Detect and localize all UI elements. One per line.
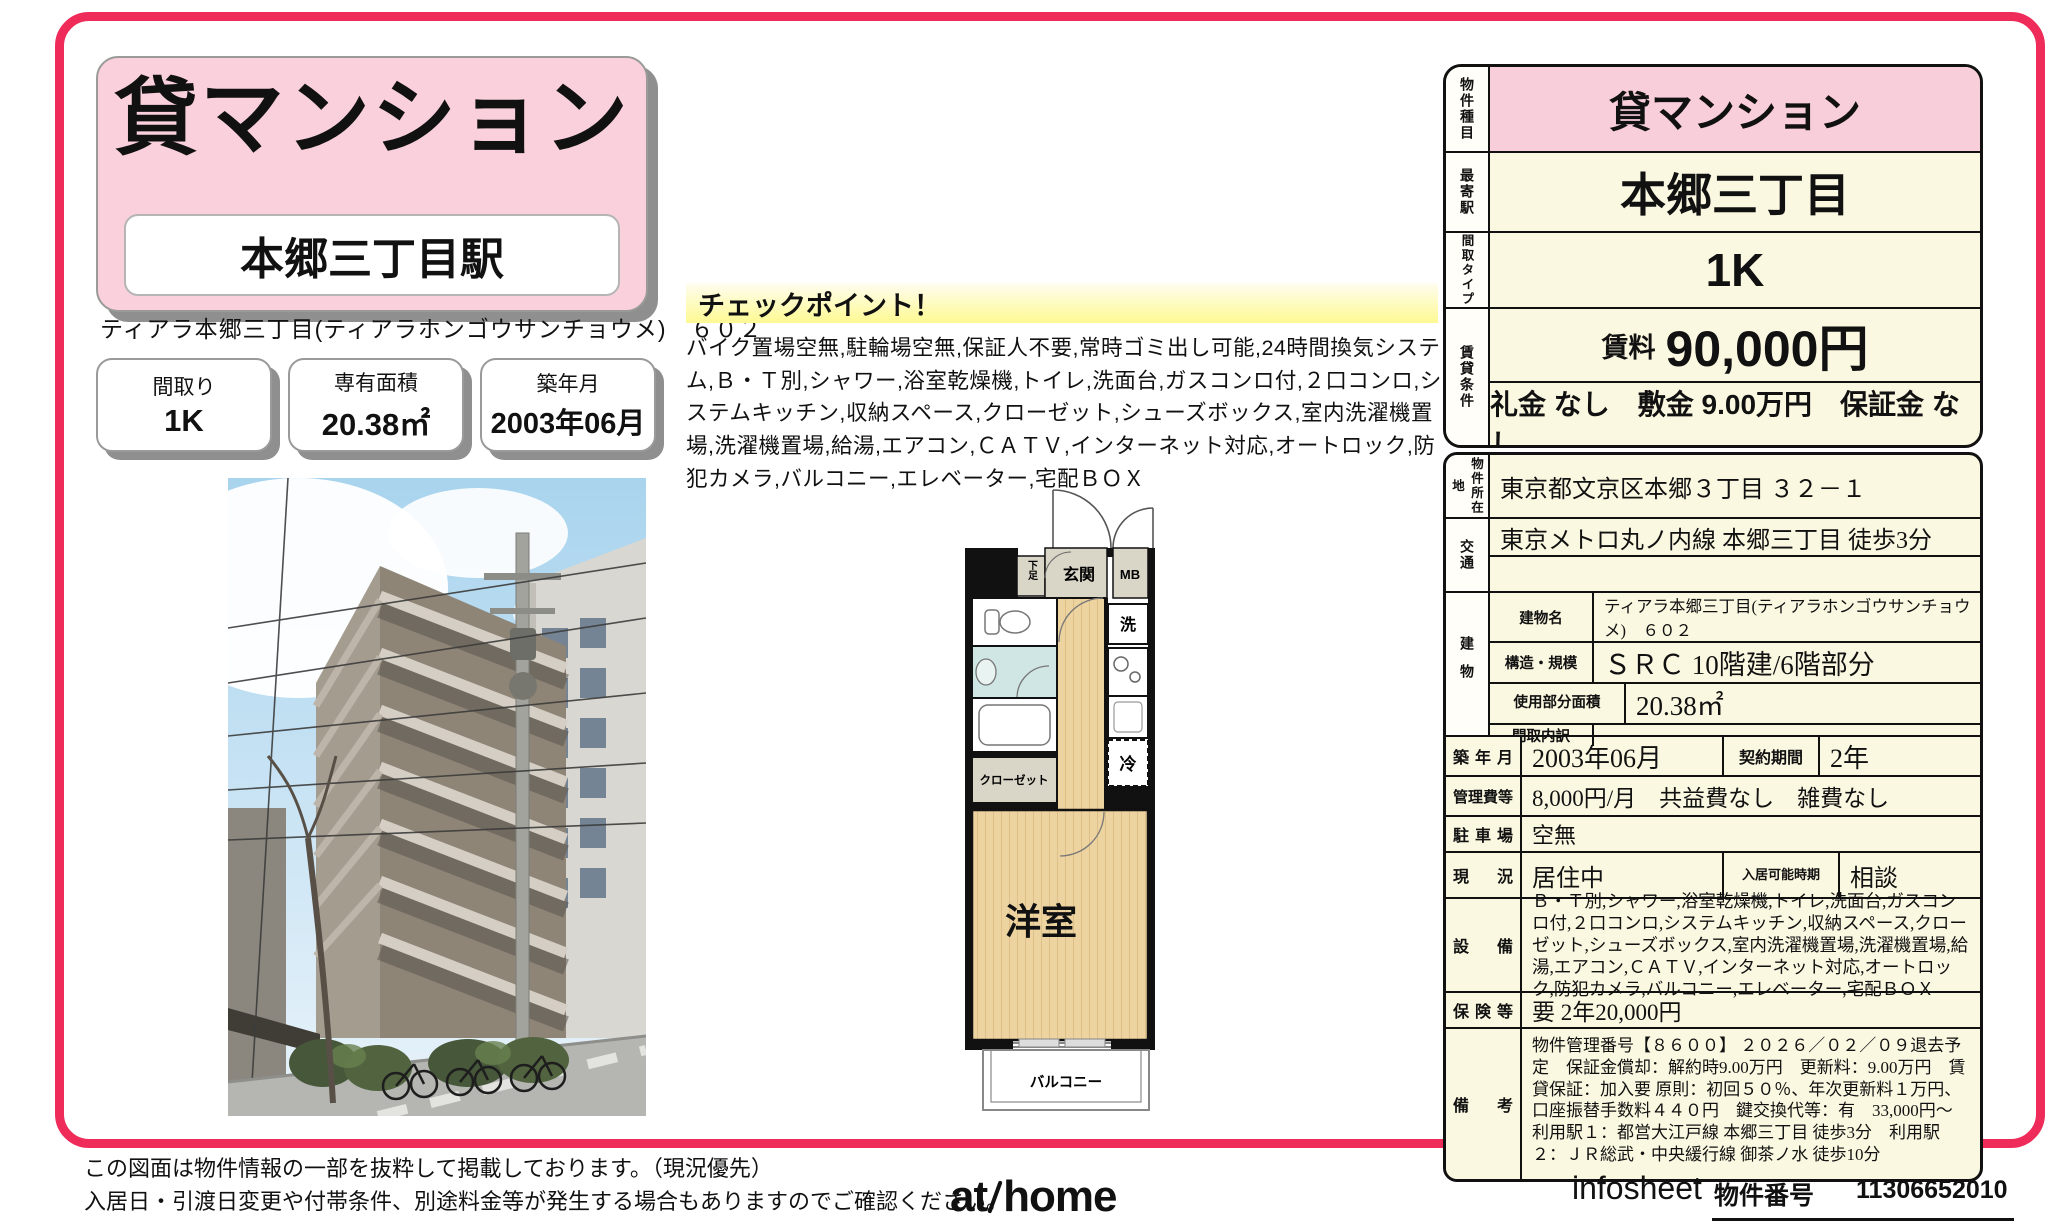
sub-value: ティアラ本郷三丁目(ティアラホンゴウサンチョウメ) ６０２ <box>1594 593 1980 641</box>
badge-area: 専有面積 20.38㎡ <box>288 358 464 452</box>
access-value: 東京メトロ丸ノ内線 本郷三丁目 徒歩3分 <box>1490 519 1980 557</box>
sub-value: 20.38㎡ <box>1626 684 1980 723</box>
row-label2: 契約期間 <box>1722 737 1820 775</box>
badge-label: 間取り <box>153 371 216 401</box>
row-value: 8,000円/月 共益費なし 雑費なし <box>1522 777 1980 815</box>
summary-row-station: 最寄駅 本郷三丁目 <box>1446 151 1980 231</box>
checkpoint-body: バイク置場空無,駐輪場空無,保証人不要,常時ゴミ出し可能,24時間換気システム,… <box>686 332 1448 495</box>
row-label: 駐車場 <box>1446 822 1520 846</box>
detail-row-notes: 備考 物件管理番号【８６００】 ２０２６／０２／０９退去予定 保証金償却：解約時… <box>1446 1027 1980 1179</box>
summary-row-type: 物件種目 貸マンション <box>1446 67 1980 151</box>
property-number: 物件番号 11306652010 <box>1712 1176 2014 1221</box>
disclaimer-line1: この図面は物件情報の一部を抜粋して掲載しております。（現況優先） <box>84 1152 1008 1185</box>
row-label: 保険等 <box>1446 998 1520 1022</box>
row-label: 賃貸条件 <box>1446 309 1490 445</box>
sub-value: ＳＲＣ 10階建/6階部分 <box>1594 643 1980 682</box>
floorplan-entrance-label: 玄関 <box>1063 565 1095 584</box>
row-label: 間取タイプ <box>1446 233 1490 307</box>
floorplan-meterbox-label: MB <box>1120 567 1140 582</box>
logo-slash-icon <box>987 1180 1002 1213</box>
disclaimer-line2: 入居日・引渡日変更や付帯条件、別途料金等が発生する場合もありますのでご確認くださ… <box>84 1185 1008 1218</box>
row-label: 設備 <box>1446 933 1520 957</box>
sub-label: 建物名 <box>1490 593 1594 641</box>
sub-label: 使用部分面積 <box>1490 684 1626 723</box>
row-value: 本郷三丁目 <box>1490 153 1980 231</box>
detail-row-equipment: 設備 Ｂ・Ｔ別,シャワー,浴室乾燥機,トイレ,洗面台,ガスコンロ付,２口コンロ,… <box>1446 897 1980 991</box>
detail-row-location: 物件所在地 東京都文京区本郷３丁目 ３２－１ <box>1446 455 1980 517</box>
row-value: 物件管理番号【８６００】 ２０２６／０２／０９退去予定 保証金償却：解約時9.0… <box>1522 1029 1980 1179</box>
detail-row-insurance: 保険等 要 2年20,000円 <box>1446 991 1980 1027</box>
summary-row-rent: 賃貸条件 賃料 90,000円 礼金 なし 敷金 9.00万円 保証金 なし <box>1446 307 1980 445</box>
property-name: ティアラ本郷三丁目(ティアラホンゴウサンチョウメ) ６０２ <box>100 310 763 344</box>
row-label: 管理費等 <box>1446 786 1520 807</box>
detail-row-built: 築年月 2003年06月 契約期間 2年 <box>1446 735 1980 775</box>
badge-built: 築年月 2003年06月 <box>480 358 656 452</box>
athome-logo: at home <box>950 1172 1116 1222</box>
building-photo <box>228 478 646 1116</box>
detail-row-parking: 駐車場 空無 <box>1446 815 1980 851</box>
station-box: 本郷三丁目駅 <box>124 214 620 296</box>
footer-disclaimer: この図面は物件情報の一部を抜粋して掲載しております。（現況優先） 入居日・引渡日… <box>84 1152 1008 1218</box>
detail-table: 物件所在地 東京都文京区本郷３丁目 ３２－１ 交通 東京メトロ丸ノ内線 本郷三丁… <box>1443 452 1983 1182</box>
rent-value: 90,000円 <box>1666 309 1869 381</box>
badge-value: 2003年06月 <box>491 400 646 442</box>
row-value: 1K <box>1490 233 1980 307</box>
badge-label: 専有面積 <box>334 367 418 397</box>
badge-label: 築年月 <box>537 368 600 398</box>
row-label: 築年月 <box>1446 744 1520 768</box>
row-value: 空無 <box>1522 817 1980 851</box>
row-label: 建物 <box>1446 593 1490 735</box>
row-value: 2003年06月 <box>1522 737 1722 775</box>
row-label: 物件所在地 <box>1446 455 1490 517</box>
badge-value: 20.38㎡ <box>322 399 431 444</box>
floorplan-fridge-label: 冷 <box>1120 754 1137 774</box>
detail-row-access: 交通 東京メトロ丸ノ内線 本郷三丁目 徒歩3分 <box>1446 517 1980 591</box>
row-label: 最寄駅 <box>1446 153 1490 231</box>
row-label: 備考 <box>1446 1092 1520 1116</box>
property-type-title: 貸マンション <box>98 72 646 164</box>
floorplan: 下足 玄関 MB 洗 クローゼット 冷 洋室 バルコニー <box>953 478 1201 1170</box>
sub-label: 構造・規模 <box>1490 643 1594 682</box>
rent-terms: 礼金 なし 敷金 9.00万円 保証金 なし <box>1490 383 1980 448</box>
floorplan-washer-label: 洗 <box>1120 615 1136 634</box>
floorplan-balcony-label: バルコニー <box>1030 1074 1102 1091</box>
logo-at: at <box>950 1172 987 1222</box>
row-label: 物件種目 <box>1446 67 1490 151</box>
detail-row-fees: 管理費等 8,000円/月 共益費なし 雑費なし <box>1446 775 1980 815</box>
summary-table: 物件種目 貸マンション 最寄駅 本郷三丁目 間取タイプ 1K 賃貸条件 賃料 9… <box>1443 64 1983 448</box>
checkpoint-title: チェックポイント！ <box>686 283 1438 323</box>
row-value: 要 2年20,000円 <box>1522 993 1980 1027</box>
badge-value: 1K <box>164 403 204 439</box>
row-label: 現況 <box>1446 863 1520 887</box>
floorplan-room-label: 洋室 <box>1005 901 1077 942</box>
access-empty <box>1490 557 1980 591</box>
detail-row-building: 建物 建物名 ティアラ本郷三丁目(ティアラホンゴウサンチョウメ) ６０２ 構造・… <box>1446 591 1980 735</box>
badge-layout: 間取り 1K <box>96 358 272 452</box>
row-value2: 2年 <box>1820 737 1980 775</box>
row-value: Ｂ・Ｔ別,シャワー,浴室乾燥機,トイレ,洗面台,ガスコンロ付,２口コンロ,システ… <box>1522 899 1980 991</box>
rent-label: 賃料 <box>1602 326 1656 365</box>
property-number-value: 11306652010 <box>1856 1176 2008 1212</box>
row-value: 東京都文京区本郷３丁目 ３２－１ <box>1490 455 1980 517</box>
property-number-label: 物件番号 <box>1714 1176 1814 1212</box>
badge-row: 間取り 1K 専有面積 20.38㎡ 築年月 2003年06月 <box>96 358 656 452</box>
floorplan-shoebox-label: 下足 <box>1026 560 1038 581</box>
infosheet-label: infosheet <box>1572 1170 1702 1207</box>
summary-row-layout: 間取タイプ 1K <box>1446 231 1980 307</box>
row-value: 貸マンション <box>1490 67 1980 151</box>
floorplan-closet-label: クローゼット <box>980 773 1049 787</box>
logo-home: home <box>1003 1172 1116 1222</box>
row-label: 交通 <box>1446 519 1490 591</box>
property-type-box: 貸マンション 本郷三丁目駅 <box>96 56 648 312</box>
